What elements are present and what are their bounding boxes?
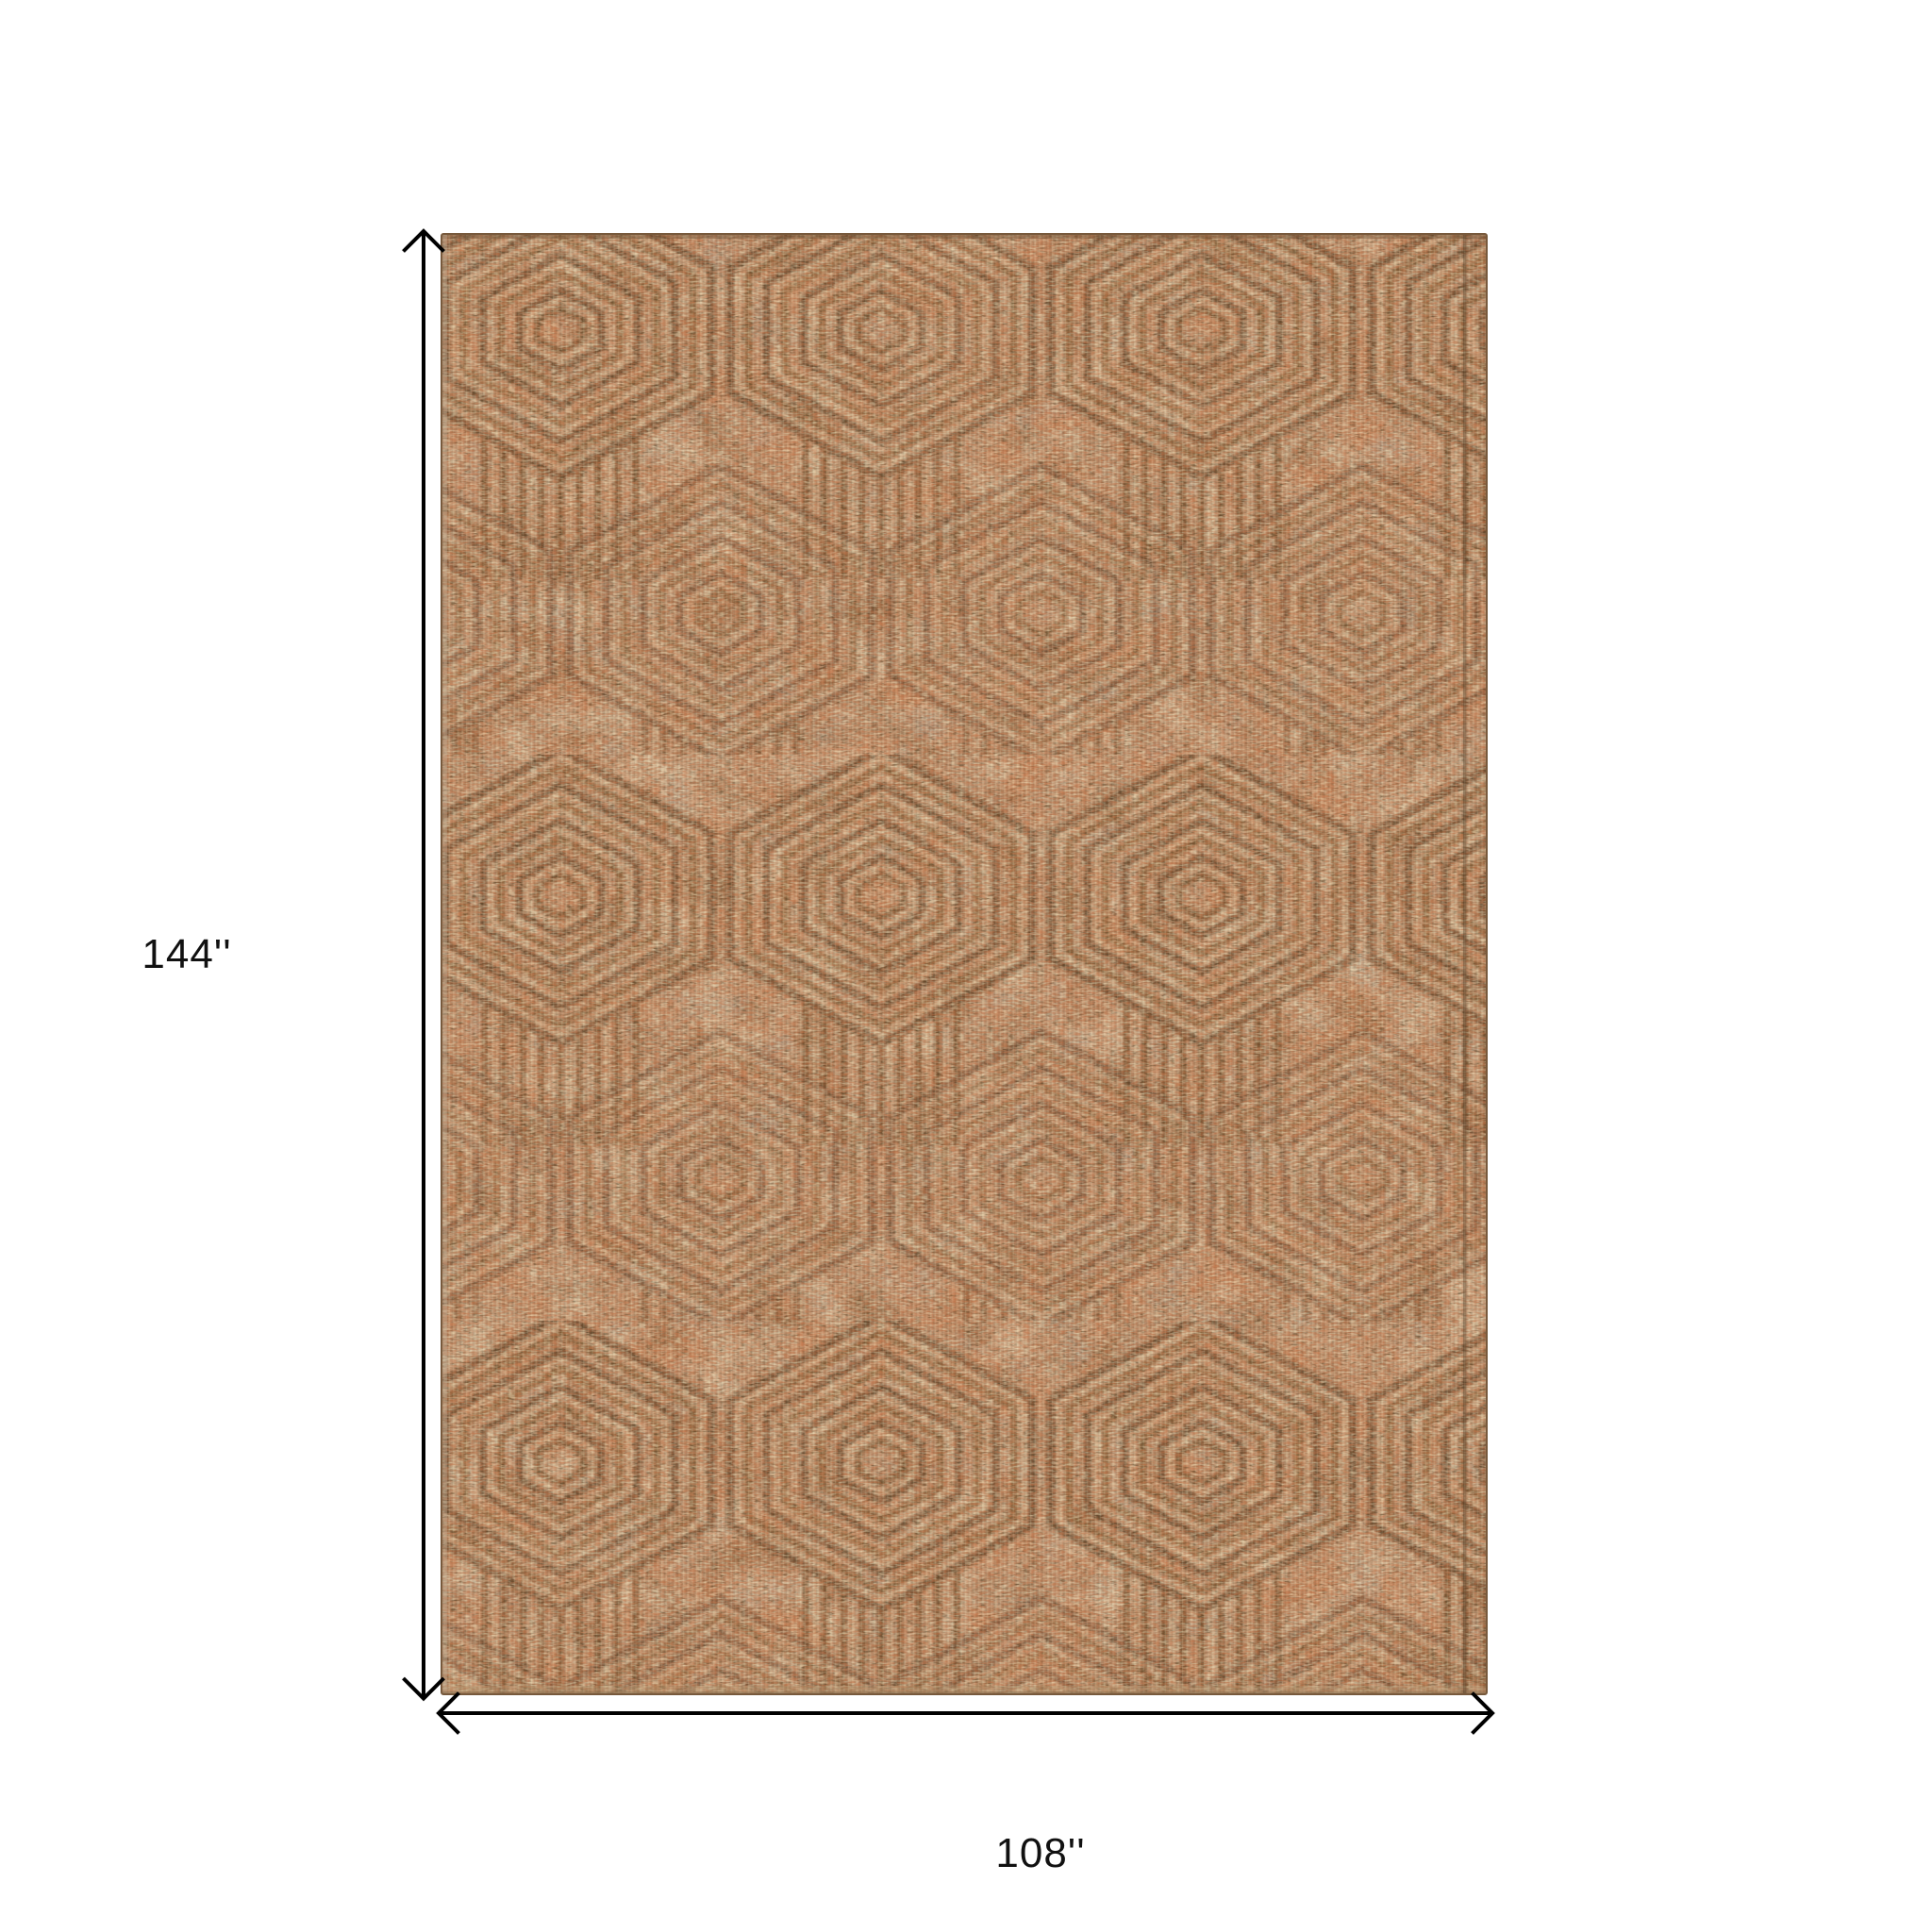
svg-text:108'': 108'' <box>995 1830 1085 1876</box>
svg-text:144'': 144'' <box>142 931 231 977</box>
